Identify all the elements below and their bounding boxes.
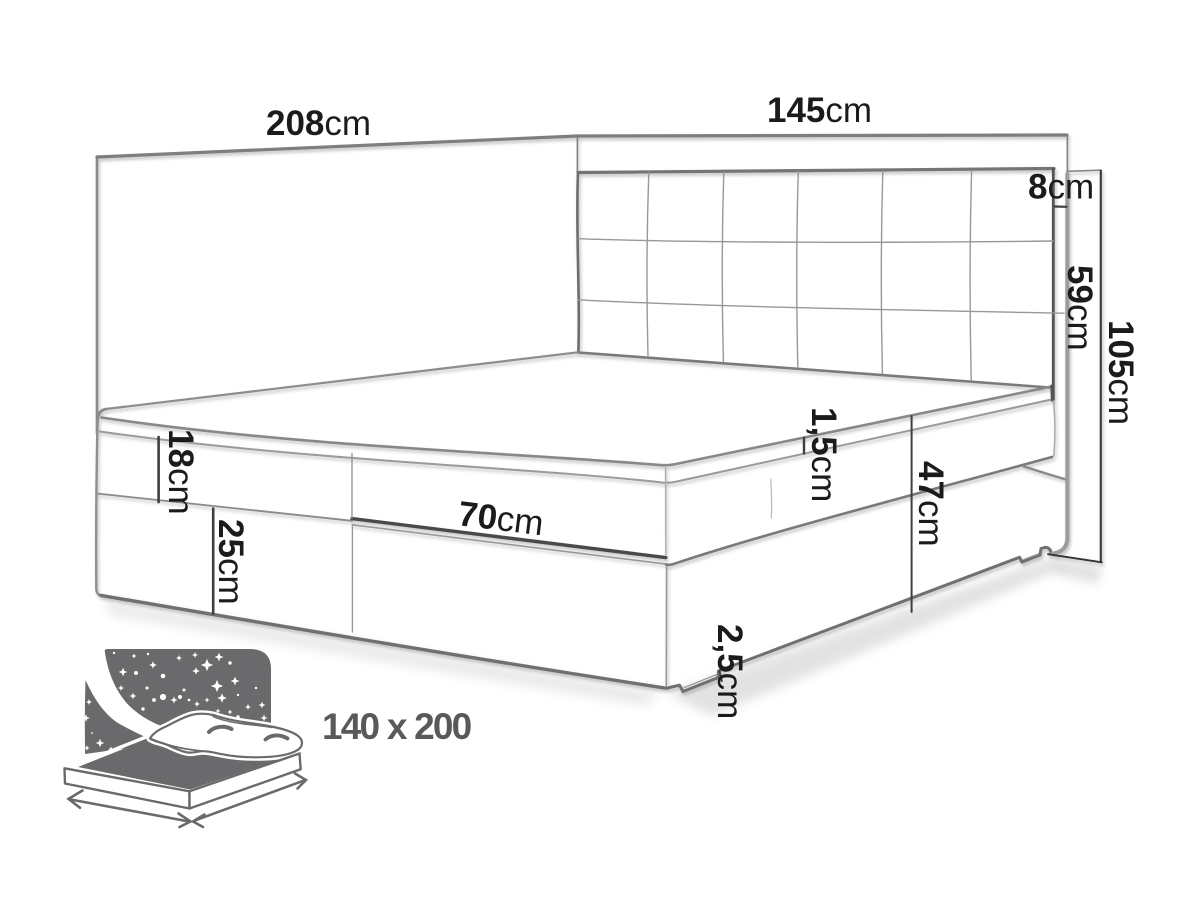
svg-text:18cm: 18cm [161, 429, 200, 515]
svg-text:145cm: 145cm [767, 91, 872, 130]
svg-text:140 x 200: 140 x 200 [322, 706, 472, 747]
svg-text:208cm: 208cm [266, 104, 371, 143]
svg-text:1,5cm: 1,5cm [804, 407, 843, 502]
svg-text:25cm: 25cm [211, 519, 250, 605]
svg-text:59cm: 59cm [1060, 265, 1099, 351]
svg-text:47cm: 47cm [911, 461, 950, 547]
svg-text:8cm: 8cm [1028, 168, 1094, 207]
svg-text:70cm: 70cm [456, 494, 546, 543]
svg-text:105cm: 105cm [1101, 320, 1140, 425]
svg-text:2,5cm: 2,5cm [710, 624, 749, 719]
